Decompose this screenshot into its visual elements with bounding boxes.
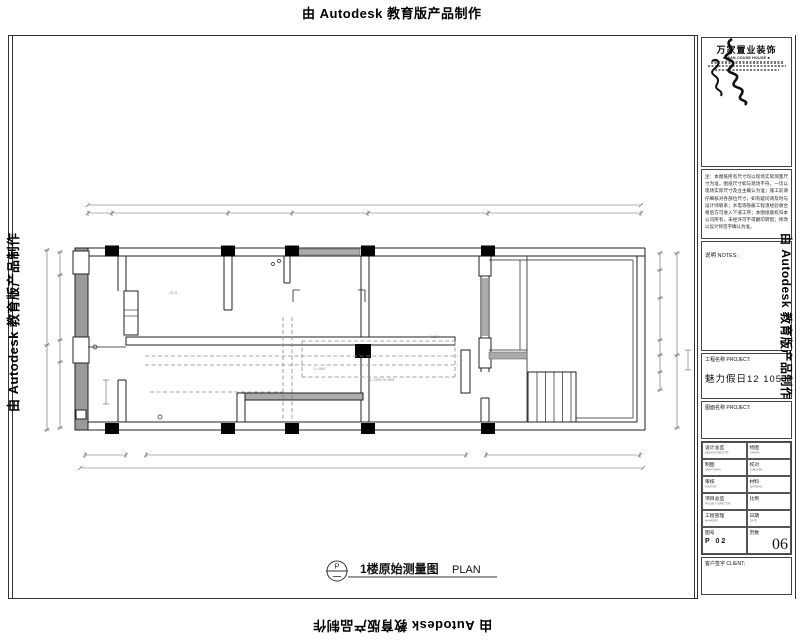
company-logo-icon	[701, 37, 760, 107]
elevation-label: -32.0	[168, 290, 178, 295]
title-symbol: P	[335, 564, 340, 571]
elevation-label: -0.15	[428, 334, 438, 339]
client-label: 客户签字 CLIENT:	[705, 560, 788, 567]
general-notes-paragraph: 注：本图纸所有尺寸均以现场实际测量尺寸为准，图纸尺寸如与现场不符，一切以现场实际…	[701, 169, 792, 239]
project-label: 工程名称 PROJECT:	[705, 356, 788, 363]
page-number: 06	[750, 537, 789, 553]
plan-title: P 1楼原始测量图 PLAN	[326, 561, 497, 581]
watermark-top: 由 Autodesk 教育版产品制作	[302, 3, 481, 22]
plan-title-en: PLAN	[452, 564, 481, 576]
table-row: 项目总监PROJECT DIRECTOR 比例1: 50	[702, 493, 791, 510]
title-fields-table: 设计总监DESIGN DIRECTOR 绘图DRAWN 制图DRAFTSMAN …	[701, 441, 792, 555]
floor-plan-canvas: -32.0 -0.15 L=300 L=300 H=300 P 1楼原始测量图 …	[0, 0, 800, 640]
drawing-no-label: 图号	[705, 529, 744, 536]
project-name: 魅力假日12 105	[705, 371, 788, 385]
plan-title-cn: 1楼原始测量图	[360, 561, 439, 576]
company-logo-box: 万家置业装饰 ■ WAN COUSE HOUSE ■	[701, 37, 792, 167]
beam-label: L=300	[314, 366, 326, 371]
table-row: 制图DRAFTSMAN 校对CHECKER	[702, 459, 791, 476]
table-row: 审核AUDITOR 材料MATERIAL	[702, 476, 791, 493]
walls	[73, 248, 645, 430]
drawing-number: P 02	[705, 538, 744, 545]
page-label: 页数	[750, 529, 789, 536]
client-signature-box: 客户签字 CLIENT:	[701, 557, 792, 595]
cad-sheet: { "watermark": { "text": "由 Autodesk 教育版…	[0, 0, 800, 640]
watermark-right: 由 Autodesk 教育版产品制作	[778, 233, 795, 399]
beam-label: L=300 H=300	[370, 377, 395, 382]
notes-label: 说明 NOTES:	[705, 253, 738, 259]
drawing-name-box: 图面名称 PROJECT:	[701, 401, 792, 439]
beam-dashed-lines	[145, 317, 458, 420]
table-row: 设计总监DESIGN DIRECTOR 绘图DRAWN	[702, 442, 791, 459]
watermark-left: 由 Autodesk 教育版产品制作	[3, 233, 22, 412]
plan-annotations: -32.0 -0.15 L=300 L=300 H=300	[168, 290, 438, 382]
watermark-bottom: 由 Autodesk 教育版产品制作	[285, 617, 520, 636]
drawing-label: 图面名称 PROJECT:	[705, 404, 788, 411]
staircase	[528, 372, 576, 422]
table-row: 工程管理MANAGER 日期DATE	[702, 510, 791, 527]
table-row: 图号P 02 页数06	[702, 527, 791, 554]
